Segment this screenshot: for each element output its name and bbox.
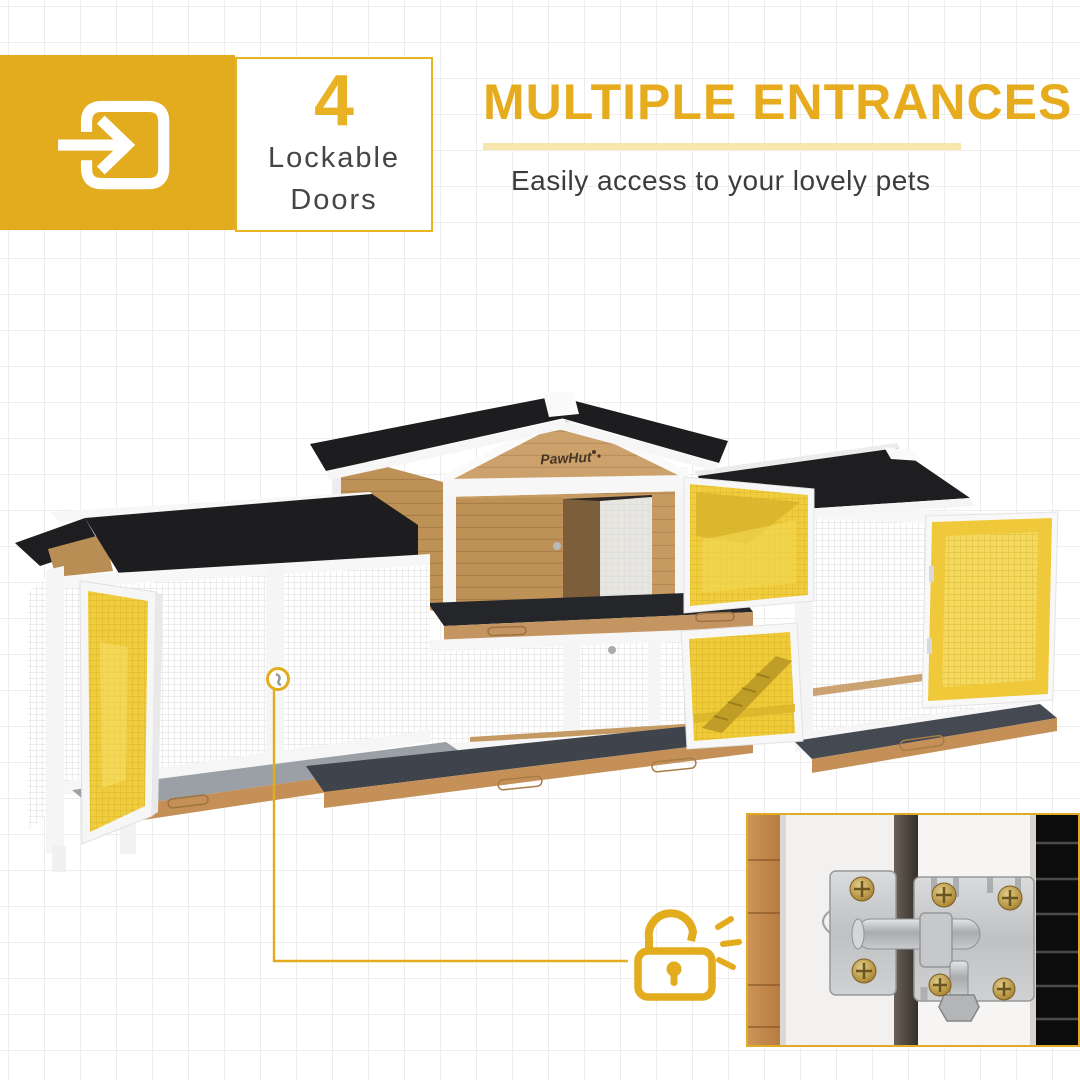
brand-logo: PawHut: [540, 449, 593, 468]
emphasis-dashes: [718, 919, 739, 967]
open-padlock-icon: [638, 913, 739, 997]
page-title: MULTIPLE ENTRANCES: [483, 76, 1063, 129]
highlighted-door-upper: [684, 477, 814, 613]
callout-circle: [268, 669, 289, 690]
latch-closeup-photo: [746, 813, 1080, 1047]
highlighted-door-right: [922, 512, 1058, 708]
house-doorway: [563, 495, 652, 605]
enter-arrow-icon: [52, 81, 182, 205]
dark-interior: [1036, 815, 1078, 1045]
feature-headline: MULTIPLE ENTRANCES Easily access to your…: [483, 76, 1063, 197]
feature-count-box: 4 Lockable Doors: [235, 57, 433, 232]
wood-strip: [748, 815, 780, 1045]
slide-bolt-latch-photo: [748, 815, 1078, 1045]
entrance-badge: [0, 55, 235, 230]
door-count-label-line1: Lockable: [237, 137, 431, 179]
title-underline: [483, 143, 961, 150]
highlighted-door-lower-ramp: [681, 623, 803, 749]
sliding-wood-door: [456, 497, 563, 609]
highlighted-door-left: [80, 581, 163, 844]
left-run-section: [15, 492, 430, 872]
door-count-label-line2: Doors: [237, 179, 431, 221]
page-subtitle: Easily access to your lovely pets: [511, 165, 1063, 197]
door-count: 4: [237, 65, 431, 137]
marketing-banner: 4 Lockable Doors MULTIPLE ENTRANCES Easi…: [0, 0, 1080, 1080]
